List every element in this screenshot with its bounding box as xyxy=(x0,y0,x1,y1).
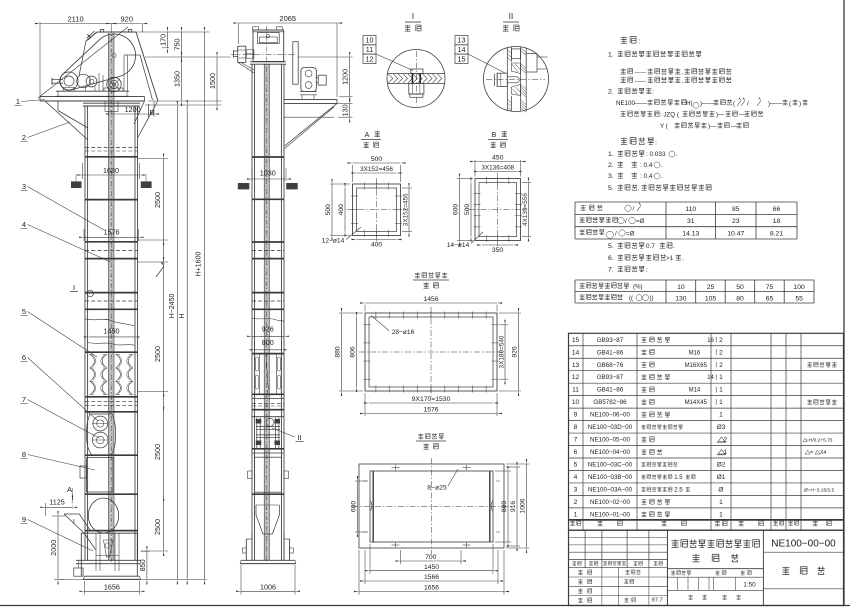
svg-text:2500: 2500 xyxy=(153,444,162,460)
svg-text:3.: 3. xyxy=(608,173,614,180)
svg-text:>1: >1 xyxy=(666,255,674,262)
svg-text:M14: M14 xyxy=(689,388,701,394)
svg-text:2: 2 xyxy=(574,499,578,506)
svg-text:2500: 2500 xyxy=(153,192,162,208)
svg-text:1450: 1450 xyxy=(424,564,439,571)
svg-text:11: 11 xyxy=(366,45,373,54)
svg-text:916: 916 xyxy=(510,501,517,513)
svg-text:B: B xyxy=(492,132,497,139)
svg-text:28−ø16: 28−ø16 xyxy=(392,329,415,336)
svg-text:6: 6 xyxy=(22,353,26,362)
svg-text:500: 500 xyxy=(464,204,471,216)
svg-text:1.: 1. xyxy=(608,52,614,59)
svg-text:6.: 6. xyxy=(608,255,614,262)
svg-text:1200: 1200 xyxy=(125,105,141,114)
svg-text:14: 14 xyxy=(458,45,466,54)
svg-text:GB93−87: GB93−87 xyxy=(597,337,624,344)
svg-text:A: A xyxy=(67,485,72,494)
svg-text:3: 3 xyxy=(574,486,578,493)
svg-text:): ) xyxy=(799,100,801,107)
svg-text:500: 500 xyxy=(325,204,332,216)
svg-text:14: 14 xyxy=(572,349,580,356)
svg-text:600: 600 xyxy=(453,204,460,216)
svg-text:II: II xyxy=(297,433,301,442)
svg-text:=Ø: =Ø xyxy=(636,218,645,225)
svg-text:2065: 2065 xyxy=(279,14,296,23)
svg-text:1576: 1576 xyxy=(423,407,438,414)
svg-text:9X170=1530: 9X170=1530 xyxy=(412,396,451,403)
svg-text:NE100——: NE100—— xyxy=(616,100,648,107)
svg-text:Ø3: Ø3 xyxy=(717,424,726,431)
svg-text:170: 170 xyxy=(159,34,168,46)
svg-text:14: 14 xyxy=(707,375,714,381)
svg-text:GB41−86: GB41−86 xyxy=(597,349,624,356)
svg-text:80: 80 xyxy=(736,295,744,302)
svg-text:NE100−02−00: NE100−02−00 xyxy=(590,499,630,506)
svg-text:)—: )— xyxy=(708,123,717,130)
svg-text:750: 750 xyxy=(173,39,182,51)
svg-text:M14X45: M14X45 xyxy=(685,400,708,406)
svg-text:M16: M16 xyxy=(689,350,701,356)
svg-text:10: 10 xyxy=(572,399,580,406)
svg-text:1680: 1680 xyxy=(103,166,119,175)
svg-text:3X152=456: 3X152=456 xyxy=(402,193,409,226)
svg-text:H: H xyxy=(179,313,186,318)
svg-text:700: 700 xyxy=(425,554,437,561)
svg-text:NE100−03C−00: NE100−03C−00 xyxy=(588,462,633,469)
svg-text:/: / xyxy=(625,218,627,225)
svg-text:1: 1 xyxy=(719,412,723,419)
svg-text:Ø=H−3.15/2.5: Ø=H−3.15/2.5 xyxy=(804,487,834,493)
svg-text:GB93−87: GB93−87 xyxy=(597,374,624,381)
svg-text:926: 926 xyxy=(512,346,519,358)
svg-text:4X139=556: 4X139=556 xyxy=(522,193,529,226)
svg-text:——: —— xyxy=(635,79,647,85)
svg-text:2: 2 xyxy=(22,133,26,142)
svg-text:806: 806 xyxy=(350,346,357,358)
svg-text:880: 880 xyxy=(335,346,342,358)
svg-text:5: 5 xyxy=(22,307,26,316)
svg-text:1: 1 xyxy=(719,399,723,406)
svg-text:400: 400 xyxy=(371,241,383,248)
svg-text:—: — xyxy=(731,123,738,130)
svg-text:A: A xyxy=(365,132,370,139)
svg-text:)——: )—— xyxy=(700,100,715,107)
svg-text:(%): (%) xyxy=(633,284,643,291)
svg-text:1: 1 xyxy=(719,511,723,518)
svg-text:13: 13 xyxy=(572,362,580,369)
svg-text:I: I xyxy=(412,12,414,21)
svg-text:.: . xyxy=(661,173,663,180)
svg-text:800: 800 xyxy=(501,501,508,513)
svg-text:13: 13 xyxy=(458,36,466,45)
svg-text:.: . xyxy=(673,243,675,250)
svg-text:31: 31 xyxy=(687,218,695,225)
svg-text:2110: 2110 xyxy=(68,15,84,24)
svg-text:2: 2 xyxy=(719,349,723,356)
svg-text:97.7: 97.7 xyxy=(652,598,663,604)
svg-text:12: 12 xyxy=(572,374,580,381)
svg-text:: 0.4: : 0.4 xyxy=(640,173,653,180)
svg-text:NE100−04−00: NE100−04−00 xyxy=(590,449,630,456)
svg-text:.: . xyxy=(682,255,684,262)
svg-text:)——: )—— xyxy=(768,100,783,107)
svg-text:.: . xyxy=(661,162,663,169)
svg-text:1006: 1006 xyxy=(260,583,276,592)
svg-text:NE100−03B−00: NE100−03B−00 xyxy=(588,474,633,481)
svg-text:920: 920 xyxy=(120,15,133,24)
svg-text:5.: 5. xyxy=(608,243,614,250)
svg-text:130: 130 xyxy=(675,295,687,302)
svg-text:=: = xyxy=(810,450,813,456)
svg-text:M16X65: M16X65 xyxy=(685,363,708,369)
svg-text:.: . xyxy=(676,151,678,158)
svg-text:3X180=540: 3X180=540 xyxy=(498,335,505,368)
svg-text:GB5782−86: GB5782−86 xyxy=(593,399,627,406)
svg-text:GB41−86: GB41−86 xyxy=(597,387,624,394)
svg-text:NE100−01−00: NE100−01−00 xyxy=(590,511,630,518)
svg-text:2.5: 2.5 xyxy=(674,487,683,493)
svg-text:1006: 1006 xyxy=(520,498,527,513)
svg-text:Ø: Ø xyxy=(718,486,723,493)
svg-text:I: I xyxy=(73,283,75,292)
svg-text:85: 85 xyxy=(732,206,740,213)
svg-text:16: 16 xyxy=(707,338,714,344)
svg-text:55: 55 xyxy=(795,295,803,302)
svg-text:9: 9 xyxy=(574,412,578,419)
svg-text:3: 3 xyxy=(22,182,26,191)
svg-text:10: 10 xyxy=(366,36,374,45)
svg-text:8: 8 xyxy=(22,450,26,459)
svg-text:926: 926 xyxy=(262,325,274,334)
svg-text:5: 5 xyxy=(574,462,578,469)
svg-text:2000: 2000 xyxy=(49,540,58,556)
svg-text:1: 1 xyxy=(719,499,723,506)
svg-text:100: 100 xyxy=(793,284,805,291)
svg-text:1456: 1456 xyxy=(423,296,438,303)
svg-text:1566: 1566 xyxy=(424,574,439,581)
svg-text:Ø2: Ø2 xyxy=(717,462,726,469)
svg-text:75: 75 xyxy=(766,284,774,291)
svg-text:——: —— xyxy=(635,70,647,76)
svg-text:NE100−03D−00: NE100−03D−00 xyxy=(588,424,633,431)
svg-text:4: 4 xyxy=(574,474,578,481)
svg-text:)): )) xyxy=(650,295,654,302)
svg-text:H−2450: H−2450 xyxy=(169,294,176,319)
svg-text:NE100−06−00: NE100−06−00 xyxy=(590,412,630,419)
svg-text:)—: )— xyxy=(716,112,725,119)
svg-text:18: 18 xyxy=(773,218,781,225)
svg-text:—: — xyxy=(739,112,746,119)
svg-text:15: 15 xyxy=(572,337,580,344)
svg-text:B: B xyxy=(149,108,154,117)
svg-text:25: 25 xyxy=(707,284,715,291)
svg-text:2.: 2. xyxy=(608,89,614,96)
svg-text:10.47: 10.47 xyxy=(727,231,744,238)
svg-text:: JZQ (: : JZQ ( xyxy=(660,112,680,119)
svg-text:1450: 1450 xyxy=(104,327,120,336)
svg-text:Ø1: Ø1 xyxy=(717,474,726,481)
svg-text:6: 6 xyxy=(574,449,578,456)
svg-text:Y (: Y ( xyxy=(660,123,669,130)
svg-text:/: / xyxy=(615,230,617,237)
svg-text:X4: X4 xyxy=(820,450,826,456)
svg-text:1.: 1. xyxy=(608,151,614,158)
svg-text::: : xyxy=(652,89,654,96)
svg-text:/: / xyxy=(747,100,749,107)
svg-text:1125: 1125 xyxy=(49,498,64,507)
svg-text:9: 9 xyxy=(22,515,26,524)
svg-text:0.7: 0.7 xyxy=(646,243,655,250)
svg-text:H(: H( xyxy=(686,100,693,107)
svg-text:NE100−00−00: NE100−00−00 xyxy=(771,539,836,550)
svg-text:12: 12 xyxy=(366,54,374,63)
svg-text:600: 600 xyxy=(351,501,358,513)
svg-text::: : xyxy=(655,138,657,147)
svg-text:7.: 7. xyxy=(608,267,614,274)
svg-text:14.13: 14.13 xyxy=(682,231,699,238)
svg-text:15: 15 xyxy=(458,54,466,63)
svg-text:500: 500 xyxy=(371,156,383,163)
svg-text:NE100−03A−00: NE100−03A−00 xyxy=(588,486,633,493)
svg-text:14−ø14: 14−ø14 xyxy=(447,242,470,249)
svg-text:1656: 1656 xyxy=(424,585,439,592)
svg-text:3X136=408: 3X136=408 xyxy=(481,165,514,172)
svg-text:1: 1 xyxy=(574,511,578,518)
svg-text:1576: 1576 xyxy=(104,228,120,237)
svg-text:8: 8 xyxy=(574,424,578,431)
svg-text:2500: 2500 xyxy=(153,346,162,362)
svg-text:10: 10 xyxy=(677,284,685,291)
svg-text:65: 65 xyxy=(766,295,774,302)
svg-text:50: 50 xyxy=(736,284,744,291)
svg-text:=H/0.2+5.75: =H/0.2+5.75 xyxy=(806,438,833,444)
svg-text:1: 1 xyxy=(719,374,723,381)
svg-text:8−ø25: 8−ø25 xyxy=(427,485,447,492)
svg-text:66: 66 xyxy=(773,206,781,213)
svg-text:NE100−05−00: NE100−05−00 xyxy=(590,437,630,444)
svg-text:110: 110 xyxy=(685,206,696,213)
svg-text:1350: 1350 xyxy=(173,71,182,87)
svg-text:2: 2 xyxy=(719,337,723,344)
svg-text:/: / xyxy=(633,206,635,213)
svg-text:12−ø14: 12−ø14 xyxy=(322,238,345,245)
svg-text::: : xyxy=(638,37,640,46)
svg-text:105: 105 xyxy=(705,295,717,302)
svg-text:11: 11 xyxy=(572,387,579,394)
svg-text:2.: 2. xyxy=(608,162,614,169)
svg-text:130: 130 xyxy=(341,104,350,116)
svg-text:7: 7 xyxy=(574,437,578,444)
svg-text:1:50: 1:50 xyxy=(743,582,756,589)
svg-text:H+1600: H+1600 xyxy=(196,252,203,277)
svg-text:1656: 1656 xyxy=(104,583,120,592)
svg-text:4: 4 xyxy=(22,220,26,229)
svg-text:1: 1 xyxy=(16,97,20,106)
svg-text::: : xyxy=(646,267,648,274)
svg-text:3X152=456: 3X152=456 xyxy=(360,166,393,173)
svg-text:: 0.4: : 0.4 xyxy=(640,162,653,169)
svg-text:850: 850 xyxy=(138,559,147,571)
svg-text:GB68−76: GB68−76 xyxy=(597,362,624,369)
svg-text::: : xyxy=(709,185,711,192)
svg-text:23: 23 xyxy=(732,218,740,225)
svg-text:350: 350 xyxy=(492,247,504,254)
svg-text:1500: 1500 xyxy=(208,73,217,89)
svg-text:1: 1 xyxy=(719,387,723,394)
svg-text:800: 800 xyxy=(262,338,274,347)
svg-text:8.21: 8.21 xyxy=(770,231,783,238)
svg-text:1.5: 1.5 xyxy=(674,475,683,481)
svg-text:2500: 2500 xyxy=(153,519,162,535)
svg-text:5.: 5. xyxy=(608,185,614,192)
svg-text:=Ø: =Ø xyxy=(626,230,635,237)
svg-text:1200: 1200 xyxy=(341,69,350,85)
svg-text:2: 2 xyxy=(719,362,723,369)
svg-text:II: II xyxy=(509,12,513,21)
svg-text:450: 450 xyxy=(492,155,504,162)
svg-text:400: 400 xyxy=(338,204,345,216)
svg-text:1030: 1030 xyxy=(260,168,276,177)
svg-text:7: 7 xyxy=(22,395,26,404)
svg-text:: 0.033: : 0.033 xyxy=(646,151,666,158)
